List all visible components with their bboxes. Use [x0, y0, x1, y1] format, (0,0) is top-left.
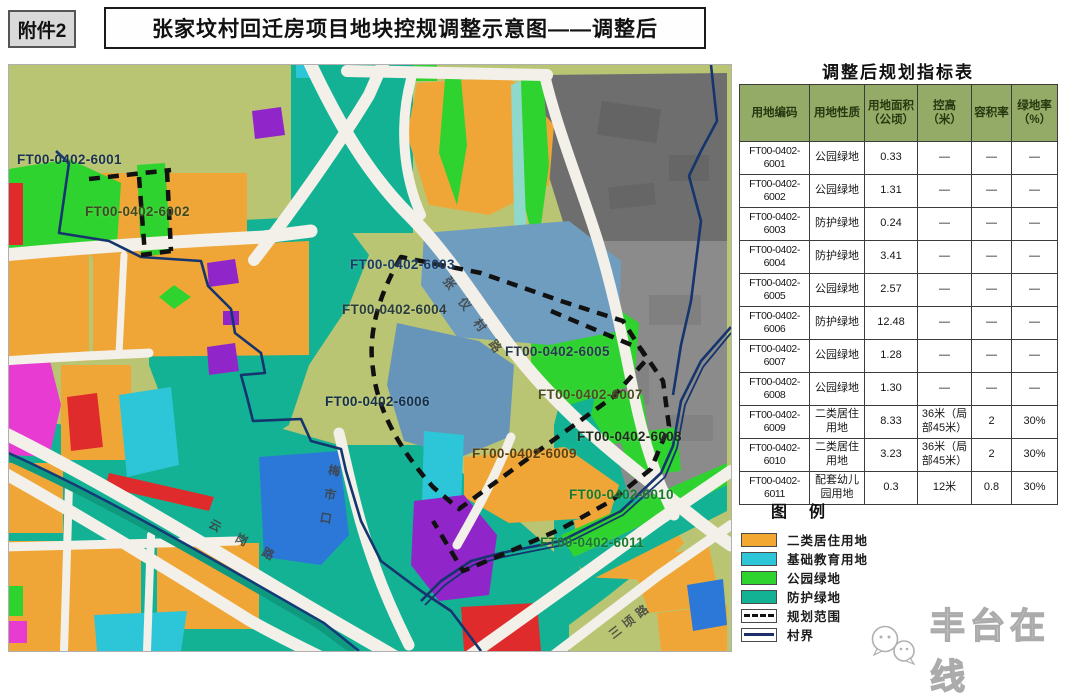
table-cell: 3.23	[865, 439, 918, 472]
column-header: 控高（米）	[918, 85, 972, 142]
table-cell: 公园绿地	[810, 373, 865, 406]
table-cell: 2	[972, 439, 1012, 472]
table-cell: —	[918, 307, 972, 340]
table-header-row: 用地编码用地性质用地面积（公顷）控高（米）容积率绿地率（%）	[740, 85, 1058, 142]
table-cell: 2	[972, 406, 1012, 439]
table-cell: —	[1012, 274, 1058, 307]
table-cell: —	[1012, 208, 1058, 241]
screenshot-root: 附件2 张家坟村回迁房项目地块控规调整示意图——调整后	[0, 0, 1070, 654]
table-cell: —	[972, 175, 1012, 208]
column-header: 用地性质	[810, 85, 865, 142]
legend-label: 基础教育用地	[787, 549, 868, 568]
table-cell: 公园绿地	[810, 175, 865, 208]
column-header: 容积率	[972, 85, 1012, 142]
table-cell: FT00-0402-6010	[740, 439, 810, 472]
table-title: 调整后规划指标表	[737, 58, 1059, 83]
table-row: FT00-0402-6004防护绿地3.41———	[740, 241, 1058, 274]
table-cell: 1.28	[865, 340, 918, 373]
table-cell: FT00-0402-6005	[740, 274, 810, 307]
table-row: FT00-0402-6003防护绿地0.24———	[740, 208, 1058, 241]
column-header: 绿地率（%）	[1012, 85, 1058, 142]
table-cell: —	[918, 373, 972, 406]
legend-swatch	[741, 628, 777, 642]
table-cell: —	[918, 175, 972, 208]
legend-item: 基础教育用地	[741, 549, 1041, 568]
watermark-text: 丰台在线	[930, 598, 1070, 700]
legend-item: 公园绿地	[741, 568, 1041, 587]
table-row: FT00-0402-6002公园绿地1.31———	[740, 175, 1058, 208]
table-cell: —	[1012, 175, 1058, 208]
map-canvas	[9, 65, 731, 651]
table-cell: FT00-0402-6007	[740, 340, 810, 373]
table-cell: —	[972, 307, 1012, 340]
table-cell: FT00-0402-6009	[740, 406, 810, 439]
page-title: 张家坟村回迁房项目地块控规调整示意图——调整后	[104, 7, 706, 49]
legend-item: 二类居住用地	[741, 530, 1041, 549]
table-cell: —	[1012, 241, 1058, 274]
table-cell: 1.30	[865, 373, 918, 406]
table-cell: —	[972, 208, 1012, 241]
wechat-bubbles-icon	[868, 624, 920, 675]
table-cell: —	[972, 241, 1012, 274]
dashed-line-icon	[744, 614, 774, 617]
table-cell: 防护绿地	[810, 307, 865, 340]
legend-title: 图例	[771, 498, 1041, 522]
legend-label: 公园绿地	[787, 568, 841, 587]
table-cell: —	[972, 373, 1012, 406]
table-cell: —	[918, 340, 972, 373]
table-row: FT00-0402-6005公园绿地2.57———	[740, 274, 1058, 307]
table-cell: 30%	[1012, 406, 1058, 439]
legend-label: 二类居住用地	[787, 530, 868, 549]
table-cell: —	[972, 274, 1012, 307]
table-cell: —	[1012, 340, 1058, 373]
legend-label: 防护绿地	[787, 587, 841, 606]
table-row: FT00-0402-6008公园绿地1.30———	[740, 373, 1058, 406]
table-cell: 1.31	[865, 175, 918, 208]
table-cell: FT00-0402-6008	[740, 373, 810, 406]
table-cell: FT00-0402-6006	[740, 307, 810, 340]
legend-label: 村界	[787, 625, 814, 644]
table-row: FT00-0402-6001公园绿地0.33———	[740, 142, 1058, 175]
table-cell: —	[918, 208, 972, 241]
table-cell: 防护绿地	[810, 208, 865, 241]
land-use-map: FT00-0402-6001FT00-0402-6002FT00-0402-60…	[8, 64, 732, 652]
table-cell: 二类居住用地	[810, 406, 865, 439]
table-cell: 2.57	[865, 274, 918, 307]
legend-swatch	[741, 609, 777, 623]
table-cell: 8.33	[865, 406, 918, 439]
column-header: 用地编码	[740, 85, 810, 142]
legend-swatch	[741, 590, 777, 604]
table-cell: 公园绿地	[810, 340, 865, 373]
table-cell: —	[1012, 142, 1058, 175]
legend-swatch	[741, 533, 777, 547]
table-cell: —	[972, 340, 1012, 373]
table-row: FT00-0402-6010二类居住用地3.2336米（局部45米）230%	[740, 439, 1058, 472]
table-row: FT00-0402-6007公园绿地1.28———	[740, 340, 1058, 373]
table-cell: FT00-0402-6001	[740, 142, 810, 175]
table-cell: 12.48	[865, 307, 918, 340]
indicator-table-body: FT00-0402-6001公园绿地0.33———FT00-0402-6002公…	[740, 142, 1058, 505]
table-row: FT00-0402-6009二类居住用地8.3336米（局部45米）230%	[740, 406, 1058, 439]
table-cell: 36米（局部45米）	[918, 406, 972, 439]
table-cell: FT00-0402-6002	[740, 175, 810, 208]
table-cell: 二类居住用地	[810, 439, 865, 472]
table-cell: FT00-0402-6004	[740, 241, 810, 274]
table-cell: 公园绿地	[810, 142, 865, 175]
table-cell: 防护绿地	[810, 241, 865, 274]
table-cell: 0.33	[865, 142, 918, 175]
table-cell: FT00-0402-6003	[740, 208, 810, 241]
table-cell: 公园绿地	[810, 274, 865, 307]
table-cell: —	[918, 241, 972, 274]
table-cell: 30%	[1012, 439, 1058, 472]
legend-swatch	[741, 552, 777, 566]
indicator-table: 用地编码用地性质用地面积（公顷）控高（米）容积率绿地率（%） FT00-0402…	[739, 84, 1058, 505]
table-cell: —	[1012, 373, 1058, 406]
table-cell: 3.41	[865, 241, 918, 274]
table-cell: —	[972, 142, 1012, 175]
attachment-badge: 附件2	[8, 10, 76, 48]
legend-label: 规划范围	[787, 606, 841, 625]
table-cell: 0.24	[865, 208, 918, 241]
table-row: FT00-0402-6006防护绿地12.48———	[740, 307, 1058, 340]
table-cell: —	[918, 142, 972, 175]
legend-swatch	[741, 571, 777, 585]
watermark: 丰台在线	[868, 598, 1070, 700]
solid-line-icon	[744, 633, 774, 636]
table-cell: 36米（局部45米）	[918, 439, 972, 472]
column-header: 用地面积（公顷）	[865, 85, 918, 142]
table-cell: —	[918, 274, 972, 307]
table-cell: —	[1012, 307, 1058, 340]
